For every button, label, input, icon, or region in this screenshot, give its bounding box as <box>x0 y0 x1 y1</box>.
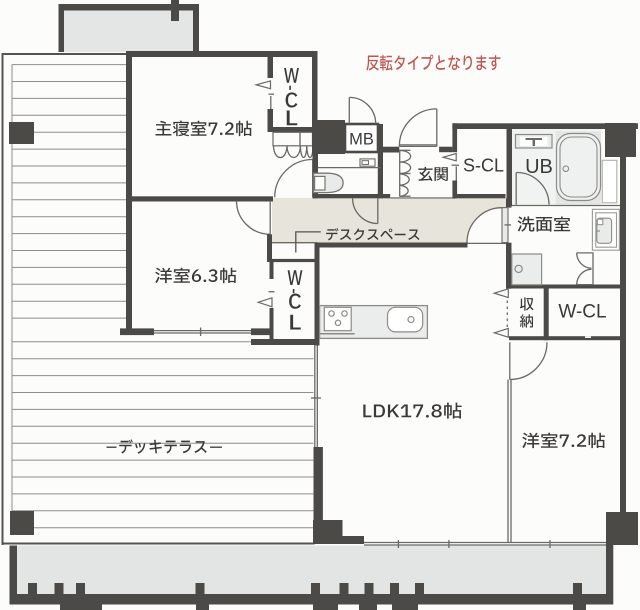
svg-text:S-CL: S-CL <box>463 155 504 175</box>
svg-text:W-CL: W-CL <box>558 302 606 323</box>
svg-text:MB: MB <box>349 131 374 149</box>
svg-text:UB: UB <box>525 156 553 178</box>
